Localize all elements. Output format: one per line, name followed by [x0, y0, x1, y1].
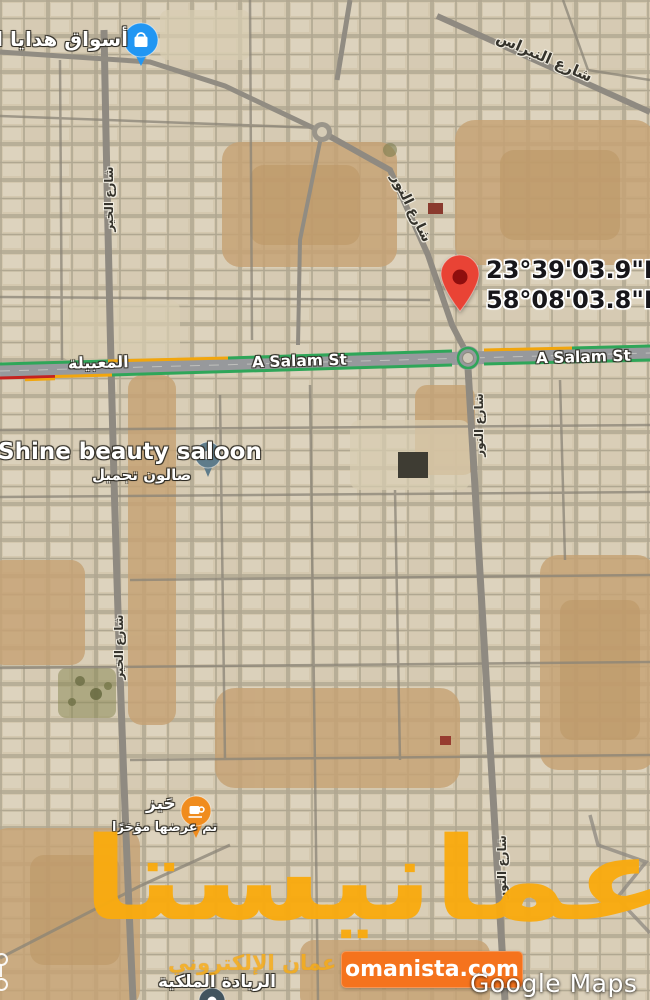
coordinate-latitude: 23°39'03.9"N — [486, 255, 650, 285]
street-label-a-salam-1: A Salam St — [252, 351, 347, 372]
coordinate-longitude: 58°08'03.8"E — [486, 285, 650, 315]
poi-label-salon-subtitle[interactable]: صالون تجميل — [92, 466, 191, 484]
street-label-noor-vertical-1: شارع النور — [472, 390, 486, 460]
pin-coordinates: 23°39'03.9"N 58°08'03.8"E — [486, 255, 650, 315]
poi-label-hayz-name[interactable]: حَيز — [146, 794, 176, 814]
poi-label-salon-name[interactable]: Shine beauty saloon — [0, 439, 262, 465]
red-roof-building-2 — [440, 736, 451, 745]
street-label-a-salam-2: A Salam St — [536, 347, 631, 368]
watermark-title: عمانيستا — [45, 818, 650, 942]
map-canvas[interactable]: أسواق هدايا الع شارع النبراس شارع النور … — [0, 0, 650, 1000]
poi-label-gift-market[interactable]: أسواق هدايا الع — [0, 27, 128, 51]
street-label-khair-vertical-2: شارع الخير — [112, 612, 126, 682]
roundabout — [456, 346, 480, 370]
google-maps-attribution[interactable]: Google Maps — [470, 969, 637, 998]
street-label-khair-vertical-1: شارع الخير — [102, 164, 116, 234]
red-roof-building — [428, 203, 443, 214]
dark-building — [398, 452, 428, 478]
street-label-maabilah: المعبيلة — [68, 352, 129, 373]
poi-label-royal-leadership[interactable]: الريادة الملكية — [158, 972, 276, 992]
